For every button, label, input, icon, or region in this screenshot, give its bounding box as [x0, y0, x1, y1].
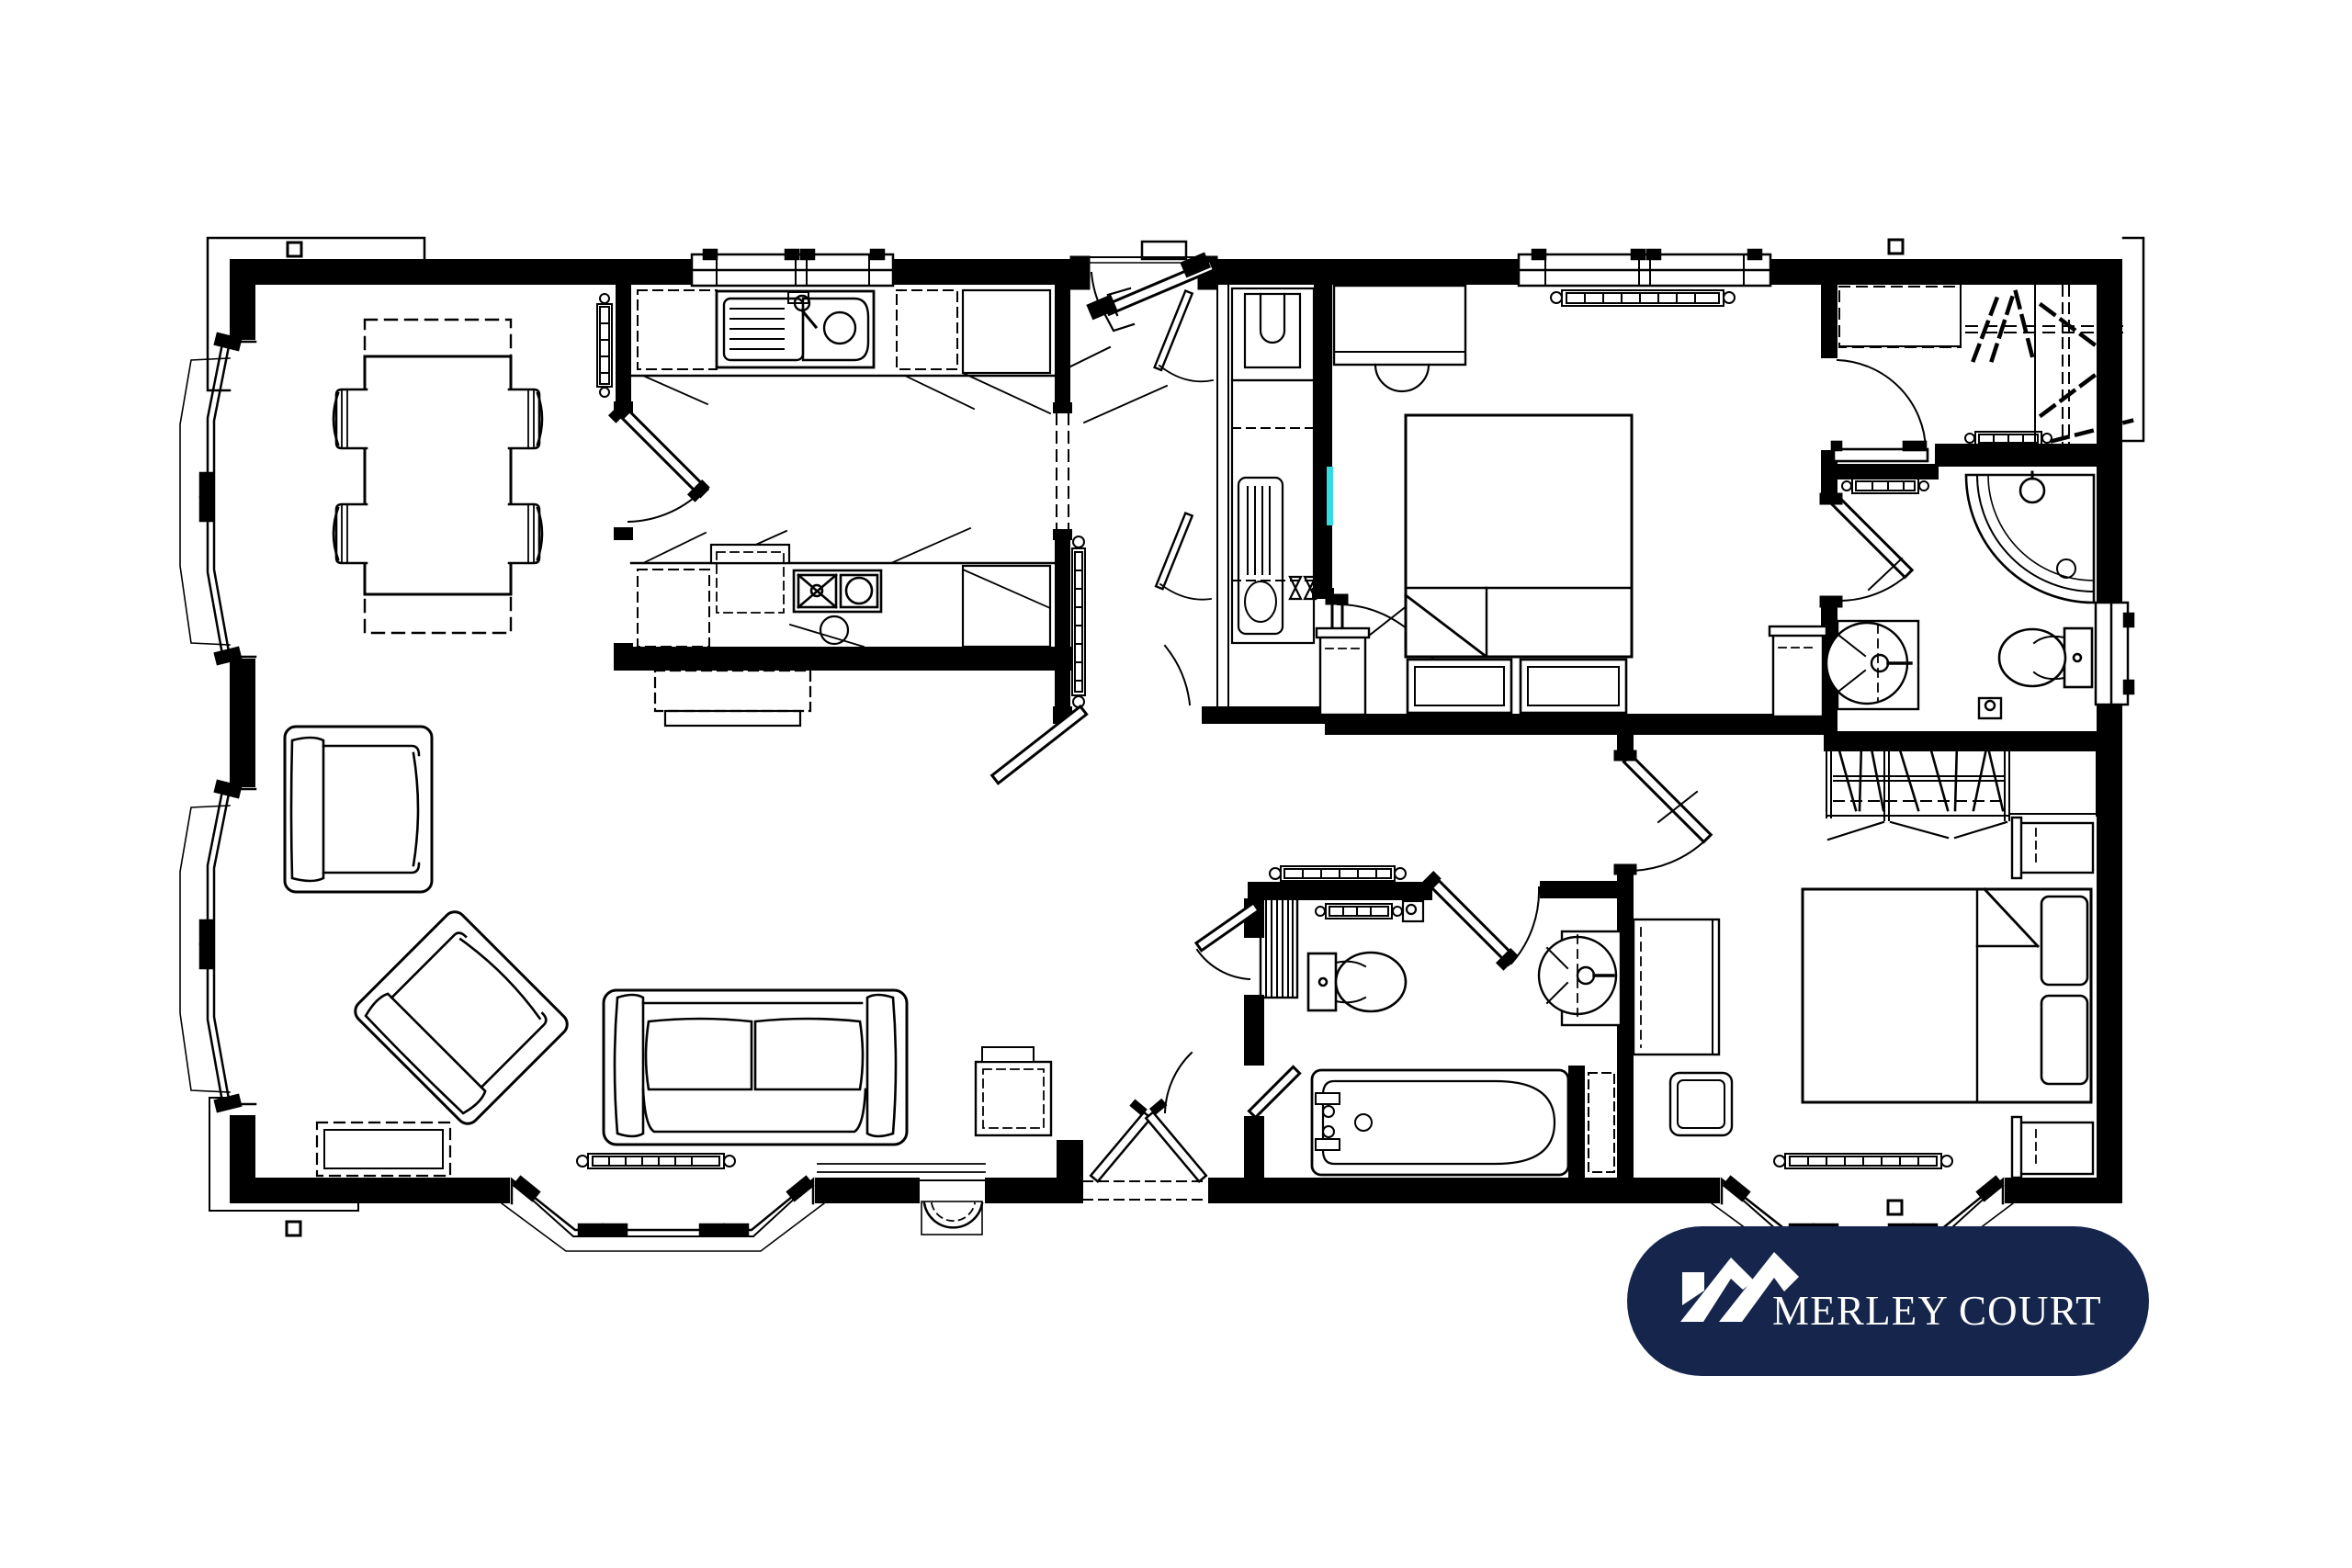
svg-text:MERLEY COURT: MERLEY COURT	[1772, 1288, 2102, 1334]
